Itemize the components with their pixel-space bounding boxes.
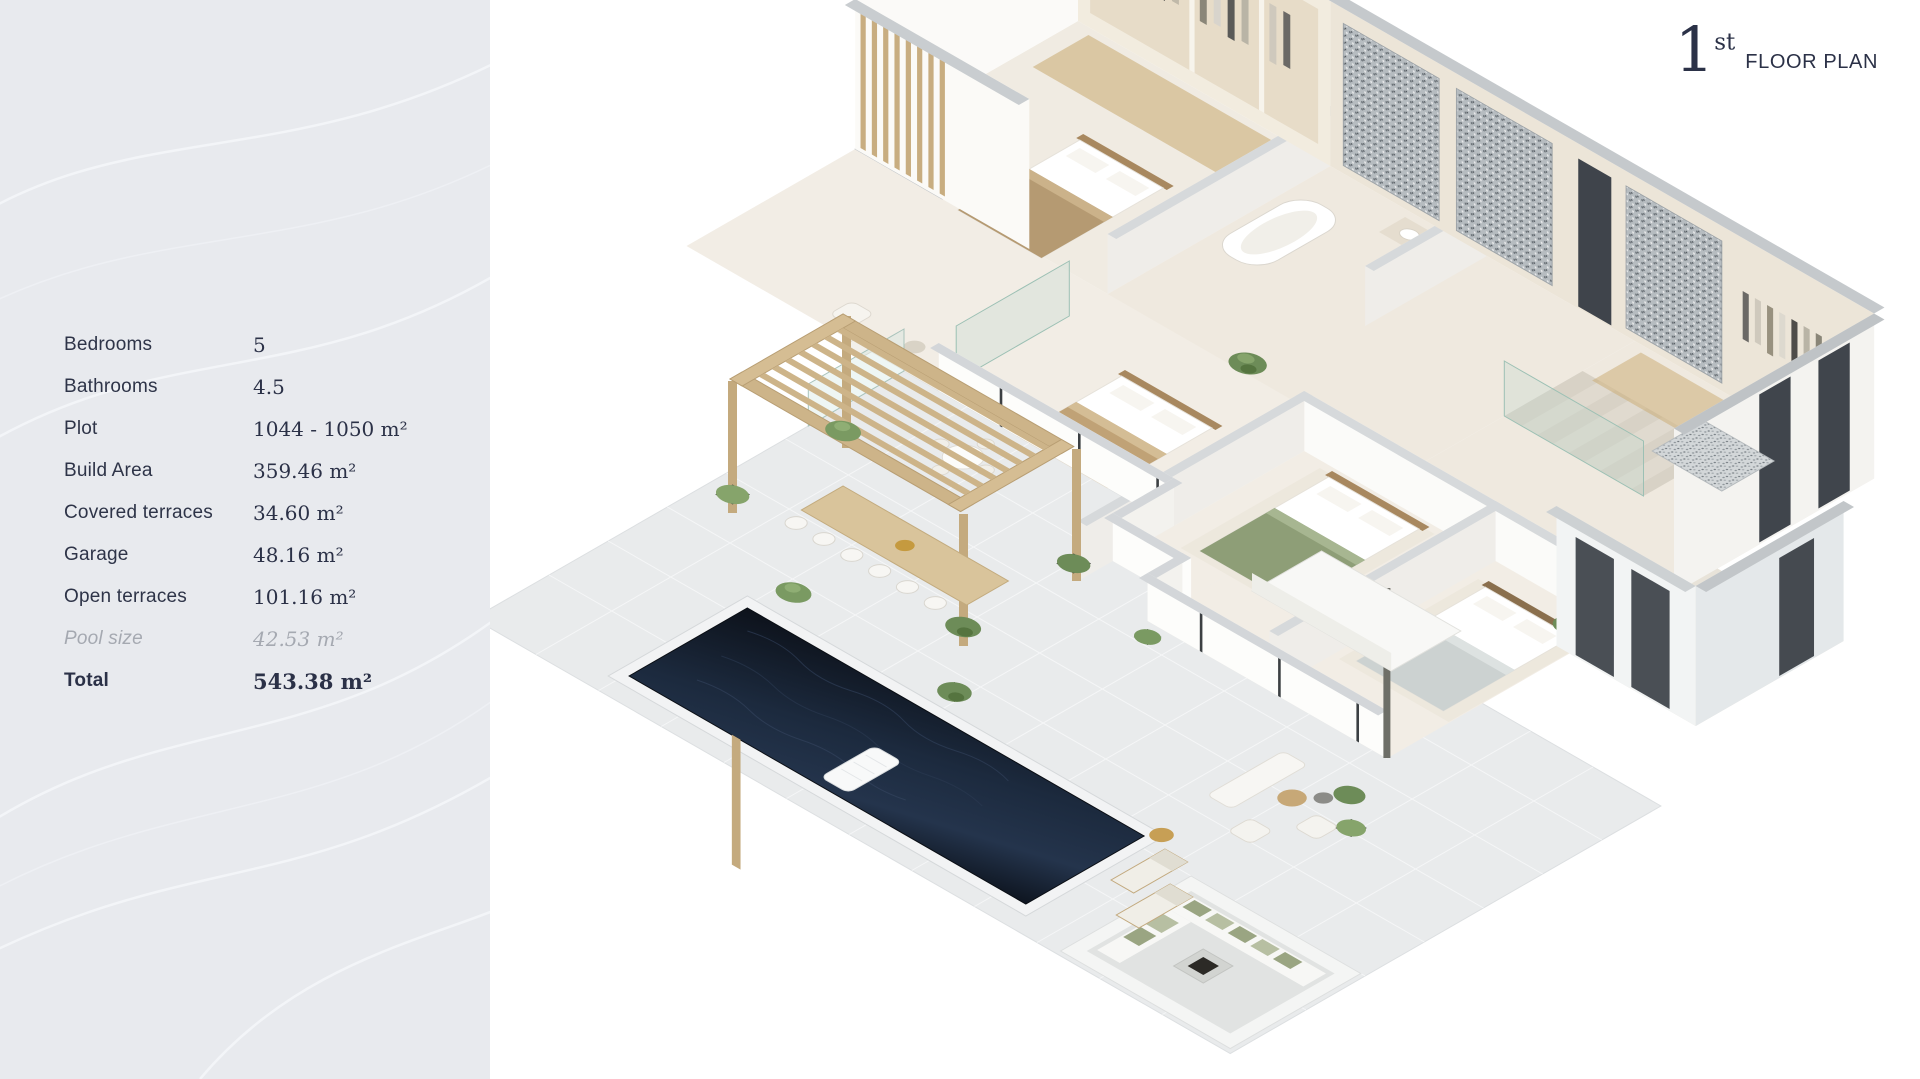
spec-label: Bathrooms	[64, 376, 253, 398]
spec-value: 1044 - 1050 m²	[253, 417, 408, 441]
spec-label: Build Area	[64, 460, 253, 482]
spec-value: 5	[253, 333, 266, 357]
spec-value: 359.46 m²	[253, 459, 356, 483]
spec-label: Garage	[64, 544, 253, 566]
spec-row-pool-size: Pool size 42.53 m²	[64, 618, 408, 660]
spec-row: Bathrooms 4.5	[64, 366, 408, 408]
spec-list: Bedrooms 5 Bathrooms 4.5 Plot 1044 - 105…	[64, 324, 408, 702]
info-panel: Bedrooms 5 Bathrooms 4.5 Plot 1044 - 105…	[0, 0, 490, 1079]
floor-number: 1st	[1675, 24, 1736, 77]
spec-row: Plot 1044 - 1050 m²	[64, 408, 408, 450]
spec-label: Bedrooms	[64, 334, 253, 356]
spec-value: 34.60 m²	[253, 501, 344, 525]
spec-value: 4.5	[253, 375, 285, 399]
floor-ordinal: st	[1714, 29, 1735, 55]
spec-row: Garage 48.16 m²	[64, 534, 408, 576]
spec-label: Open terraces	[64, 586, 253, 608]
spec-label: Covered terraces	[64, 502, 253, 524]
spec-row-total: Total 543.38 m²	[64, 660, 408, 702]
spec-value: 101.16 m²	[253, 585, 356, 609]
spec-label: Total	[64, 670, 253, 692]
spec-row: Covered terraces 34.60 m²	[64, 492, 408, 534]
spec-row: Bedrooms 5	[64, 324, 408, 366]
spec-label: Pool size	[64, 628, 253, 650]
page: Bedrooms 5 Bathrooms 4.5 Plot 1044 - 105…	[0, 0, 1920, 1079]
floor-plan-label: FLOOR PLAN	[1745, 51, 1878, 74]
spec-label: Plot	[64, 418, 253, 440]
spec-value: 48.16 m²	[253, 543, 344, 567]
spec-row: Open terraces 101.16 m²	[64, 576, 408, 618]
spec-value: 543.38 m²	[253, 669, 372, 694]
spec-row: Build Area 359.46 m²	[64, 450, 408, 492]
spec-value: 42.53 m²	[253, 627, 344, 651]
page-title: 1st FLOOR PLAN	[1675, 24, 1878, 77]
